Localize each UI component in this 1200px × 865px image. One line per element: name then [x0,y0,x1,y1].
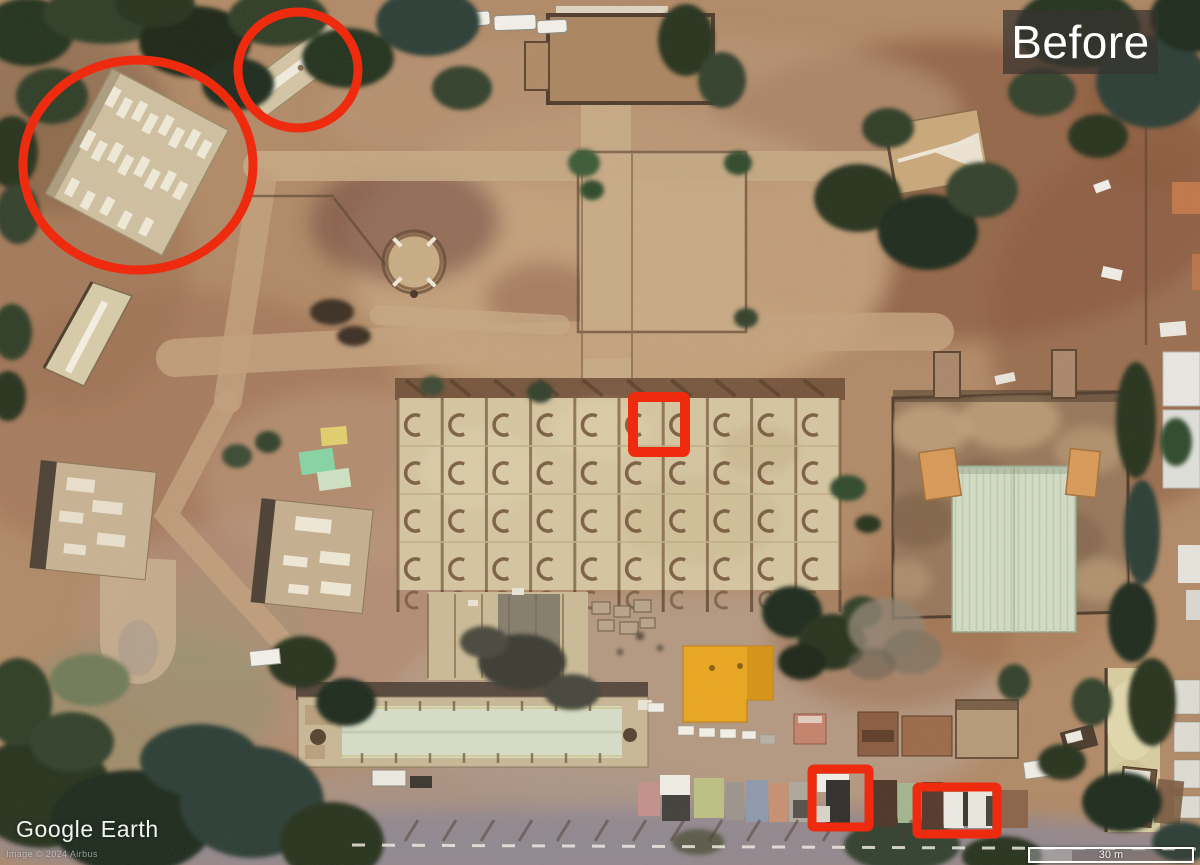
before-label: Before [1003,10,1158,74]
imagery-attribution: Image © 2024 Airbus [6,849,98,859]
scale-bar: 30 m [1028,847,1194,863]
film-grain [0,0,1200,865]
satellite-photo [0,0,1200,865]
annotated-satellite-image: Before Google Earth Image © 2024 Airbus … [0,0,1200,865]
scale-bar-segment [1030,849,1072,861]
google-earth-watermark: Google Earth [16,816,159,843]
scale-bar-label: 30 m [1099,850,1123,861]
